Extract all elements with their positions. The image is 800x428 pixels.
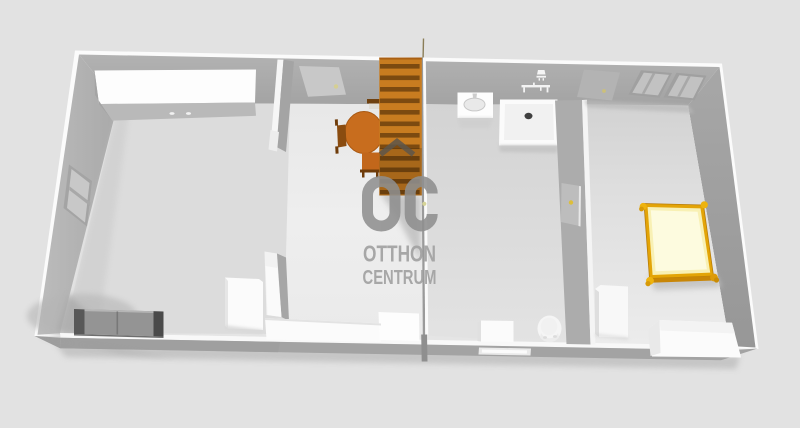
svg-text:CENTRUM: CENTRUM: [363, 267, 437, 289]
svg-text:OTTHON: OTTHON: [363, 241, 436, 267]
